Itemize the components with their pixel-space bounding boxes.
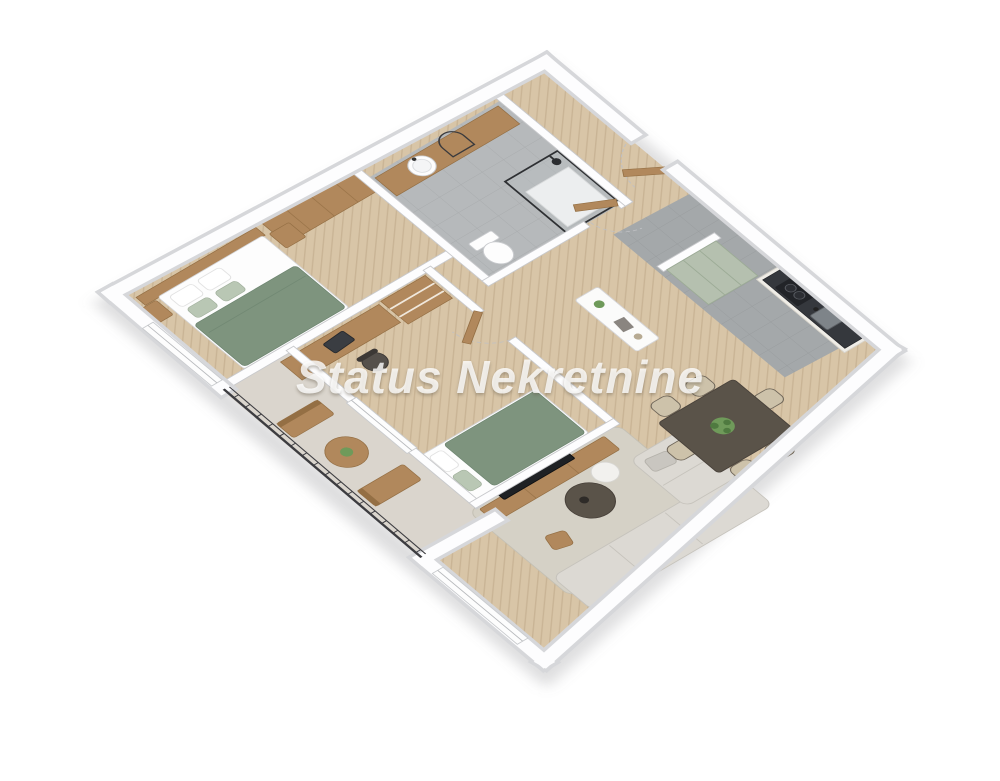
floor-plan-canvas: Status Nekretnine [0,0,1000,781]
floor-plan-rendering [0,0,1000,781]
